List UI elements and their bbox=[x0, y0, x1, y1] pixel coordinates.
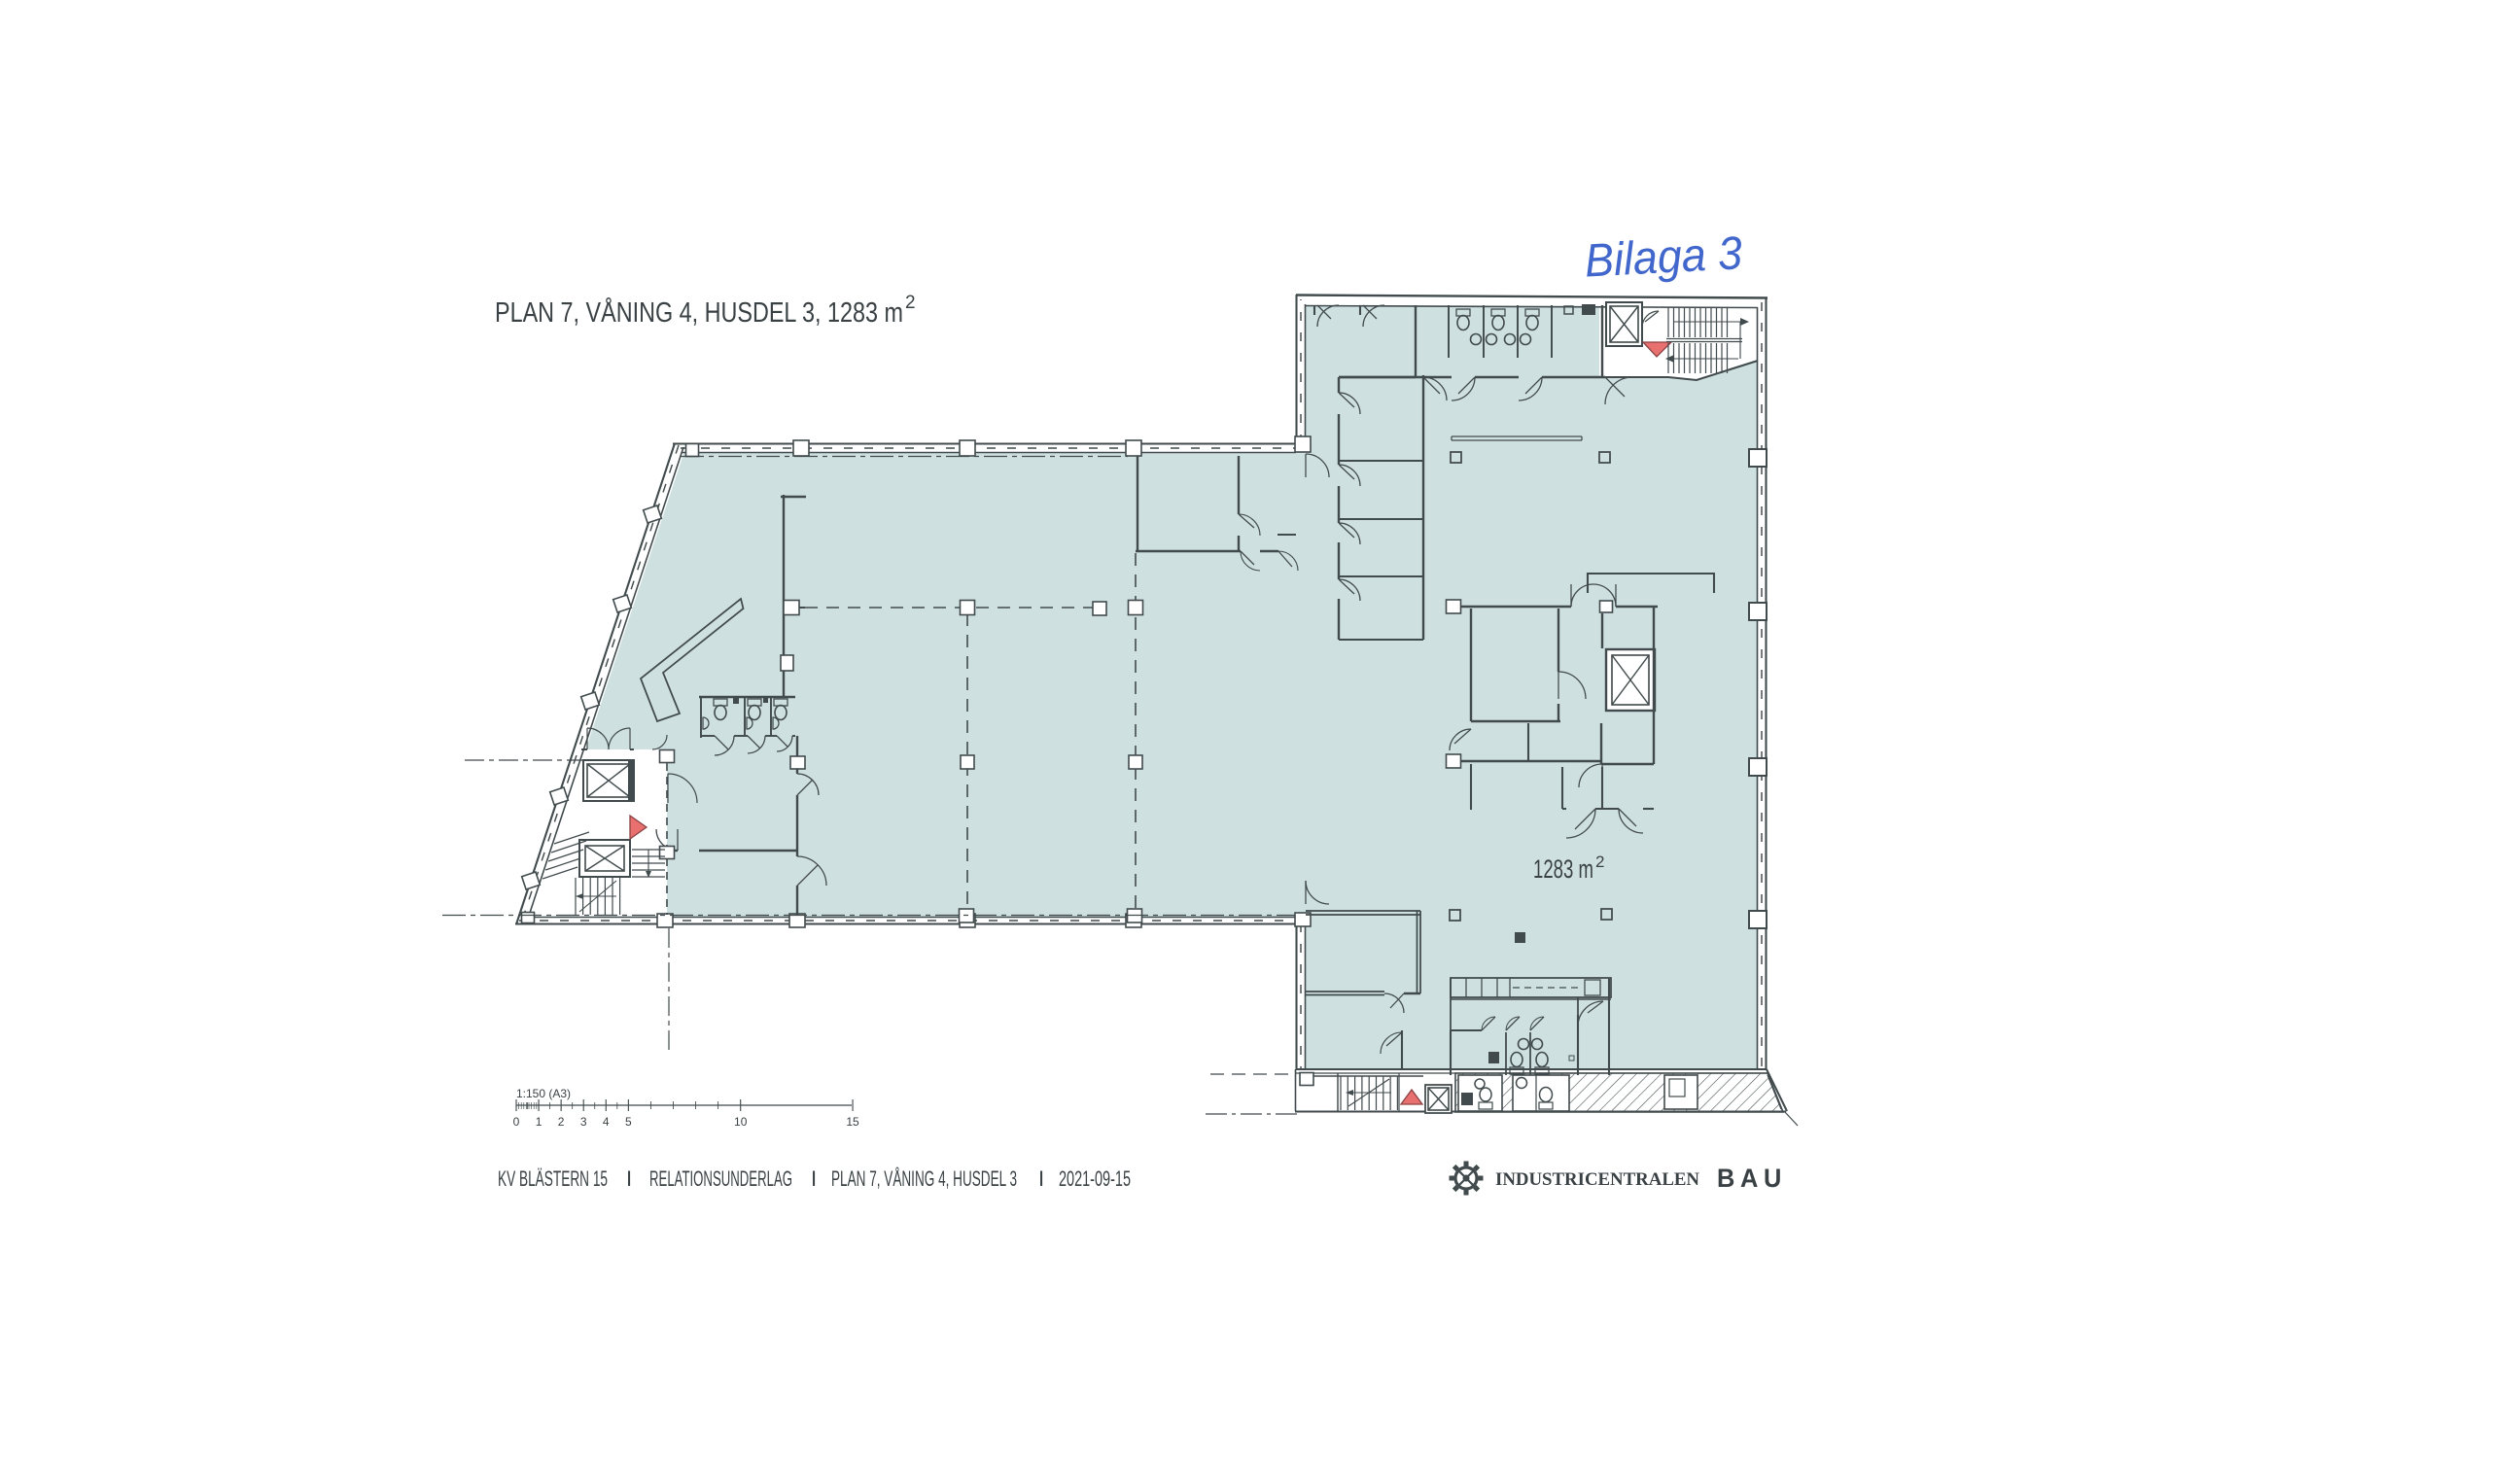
svg-text:PLAN 7, VÅNING 4, HUSDEL 3, 12: PLAN 7, VÅNING 4, HUSDEL 3, 1283 m bbox=[495, 296, 903, 329]
svg-text:5: 5 bbox=[625, 1115, 632, 1129]
svg-text:4: 4 bbox=[603, 1115, 610, 1129]
svg-text:PLAN 7, VÅNING 4, HUSDEL 3: PLAN 7, VÅNING 4, HUSDEL 3 bbox=[831, 1166, 1017, 1191]
svg-text:10: 10 bbox=[734, 1115, 748, 1129]
svg-text:2021-09-15: 2021-09-15 bbox=[1059, 1166, 1131, 1191]
svg-text:INDUSTRICENTRALEN: INDUSTRICENTRALEN bbox=[1495, 1169, 1699, 1190]
svg-text:I: I bbox=[811, 1166, 817, 1191]
svg-text:3: 3 bbox=[580, 1115, 587, 1129]
svg-text:1:150 (A3): 1:150 (A3) bbox=[516, 1087, 571, 1100]
svg-text:15: 15 bbox=[846, 1115, 859, 1129]
svg-text:2: 2 bbox=[905, 293, 916, 313]
svg-text:I: I bbox=[626, 1166, 632, 1191]
svg-text:2: 2 bbox=[558, 1115, 565, 1129]
svg-text:Bilaga 3: Bilaga 3 bbox=[1584, 227, 1744, 287]
svg-text:1: 1 bbox=[536, 1115, 542, 1129]
svg-text:RELATIONSUNDERLAG: RELATIONSUNDERLAG bbox=[649, 1166, 792, 1191]
svg-text:0: 0 bbox=[513, 1115, 520, 1129]
svg-text:I: I bbox=[1038, 1166, 1044, 1191]
svg-text:KV BLÄSTERN 15: KV BLÄSTERN 15 bbox=[498, 1166, 608, 1191]
svg-text:BAU: BAU bbox=[1717, 1164, 1787, 1193]
svg-text:1283 m: 1283 m bbox=[1533, 854, 1593, 884]
svg-text:2: 2 bbox=[1595, 853, 1604, 871]
